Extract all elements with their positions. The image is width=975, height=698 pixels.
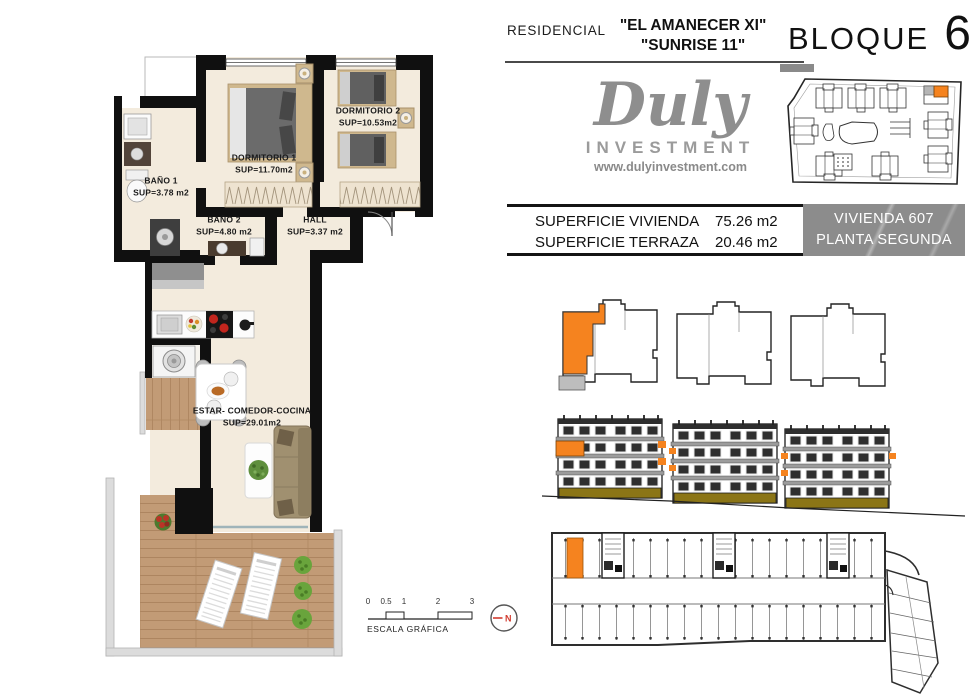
- room-label-hall: HALLSUP=3.37 m2: [287, 214, 343, 239]
- summary-row: SUPERFICIE VIVIENDA 75.26 m2: [507, 211, 803, 232]
- header-divider: [505, 61, 804, 63]
- closet: [152, 263, 204, 289]
- scale-tick: 1: [402, 597, 406, 606]
- residencial-label: RESIDENCIAL: [507, 16, 606, 56]
- scale-tick: 0.5: [380, 597, 391, 606]
- unit-badge: VIVIENDA 607 PLANTA SEGUNDA: [803, 204, 965, 256]
- room-label-bano-1: BAÑO 1SUP=3.78 m2: [133, 175, 189, 200]
- key-plans: [545, 292, 965, 407]
- coffee-table: [245, 443, 272, 498]
- room-label-dormitorio-2: DORMITORIO 2SUP=10.53m2: [336, 105, 401, 130]
- scale-bar-graphic: [363, 607, 478, 621]
- garage-ramp: [887, 570, 938, 693]
- elevation-highlighted-unit: [556, 441, 584, 456]
- company-logo: Duly INVESTMENT www.dulyinvestment.com: [558, 74, 783, 174]
- room-label-bano-2: BAÑO 2SUP=4.80 m2: [196, 214, 252, 239]
- bloque-number: 6: [944, 6, 973, 61]
- scale-tick: 3: [470, 597, 474, 606]
- building-elevations: [540, 412, 970, 524]
- logo-wordmark: Duly: [558, 74, 783, 137]
- apartment-floor-plan: BAÑO 1SUP=3.78 m2 DORMITORIO 1SUP=11.70m…: [0, 0, 540, 698]
- scale-bar: 0 0.5 1 2 3 ESCALA GRÁFICA: [363, 597, 493, 641]
- room-label-estar-comedor-cocina: ESTAR- COMEDOR-COCINASUP=29.01m2: [193, 405, 311, 430]
- floor-plan-drawing: [0, 0, 540, 698]
- logo-website: www.dulyinvestment.com: [558, 160, 783, 174]
- residencial-name: "EL AMANECER XI" "SUNRISE 11": [620, 16, 766, 56]
- room-label-dormitorio-1: DORMITORIO 1SUP=11.70m2: [232, 152, 297, 177]
- site-plan: [778, 62, 975, 214]
- north-indicator-icon: N: [487, 601, 521, 635]
- garage-plan: [540, 525, 975, 698]
- svg-text:N: N: [505, 614, 512, 624]
- plan-sheet: BAÑO 1SUP=3.78 m2 DORMITORIO 1SUP=11.70m…: [0, 0, 975, 698]
- kitchen-counter: [152, 311, 254, 338]
- header: RESIDENCIAL "EL AMANECER XI" "SUNRISE 11…: [507, 16, 766, 56]
- logo-subtitle: INVESTMENT: [558, 138, 783, 158]
- sofa: [274, 426, 311, 518]
- scale-title: ESCALA GRÁFICA: [367, 624, 449, 634]
- scale-tick: 2: [436, 597, 440, 606]
- scale-tick: 0: [366, 597, 370, 606]
- washing-machine: [153, 346, 195, 377]
- bloque-title: BLOQUE 6: [788, 6, 973, 61]
- surface-summary: SUPERFICIE VIVIENDA 75.26 m2 SUPERFICIE …: [507, 204, 803, 256]
- site-plan-highlighted-unit: [924, 86, 948, 104]
- summary-row: SUPERFICIE TERRAZA 20.46 m2: [507, 232, 803, 253]
- bloque-label: BLOQUE: [788, 21, 929, 57]
- garage-highlighted-space: [567, 538, 583, 578]
